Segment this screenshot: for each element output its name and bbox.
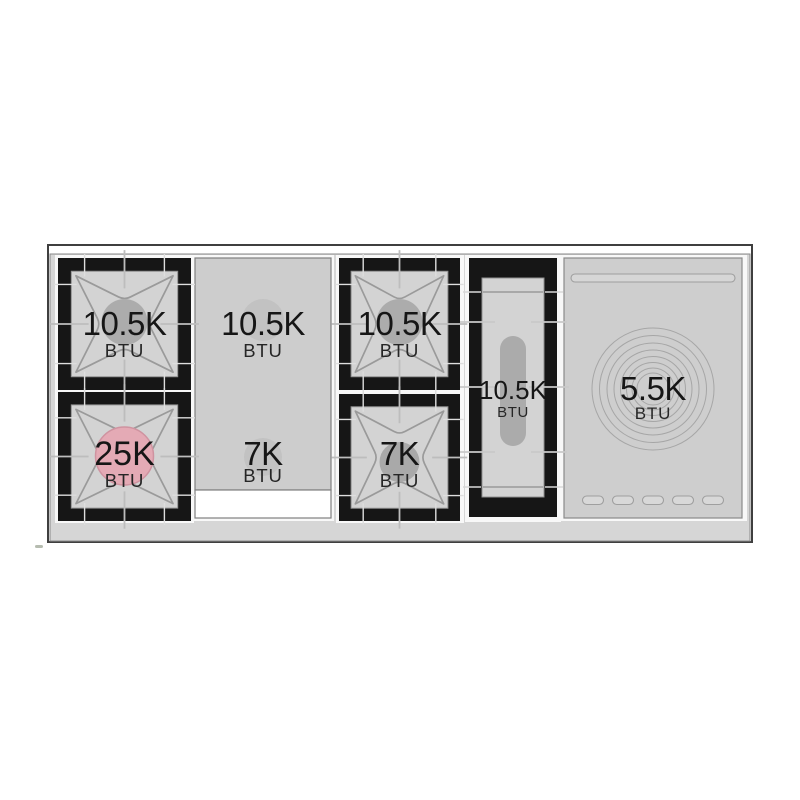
burner-center-top: 10.5K BTU [332,250,468,398]
btu-unit-label: BTU [380,340,419,361]
btu-value-label: 7K [380,435,420,472]
btu-unit-label: BTU [497,404,529,421]
btu-unit-label: BTU [635,404,671,423]
btu-value-label: 10.5K [358,305,442,342]
btu-value-label: 25K [94,435,155,473]
scan-artifact-dash [35,545,43,548]
btu-value-label: 10.5K [83,305,167,342]
griddle-section: 10.5K BTU 7K BTU [195,258,331,518]
btu-unit-label: BTU [105,340,144,361]
burner-center-bottom: 7K BTU [332,386,468,528]
burner-left-top: 10.5K BTU [50,250,199,398]
simmer-section: 5.5K BTU [564,258,742,518]
burner-left-bottom: 25K BTU [50,384,199,528]
page: 10.5K BTU 7K BTU 5.5K BTU [0,0,800,800]
btu-unit-label: BTU [243,465,282,486]
oval-burner-section: 10.5K BTU [457,258,569,517]
btu-unit-label: BTU [380,470,419,491]
btu-value-label: 5.5K [620,370,686,407]
btu-unit-label: BTU [243,340,282,361]
btu-unit-label: BTU [105,470,144,491]
btu-value-label: 10.5K [479,375,548,405]
cooktop-svg: 10.5K BTU 7K BTU 5.5K BTU [47,244,753,545]
btu-value-label: 10.5K [221,305,305,342]
warming-rail [571,274,735,282]
griddle-handle [195,490,331,518]
cooktop-diagram: 10.5K BTU 7K BTU 5.5K BTU [47,244,753,545]
